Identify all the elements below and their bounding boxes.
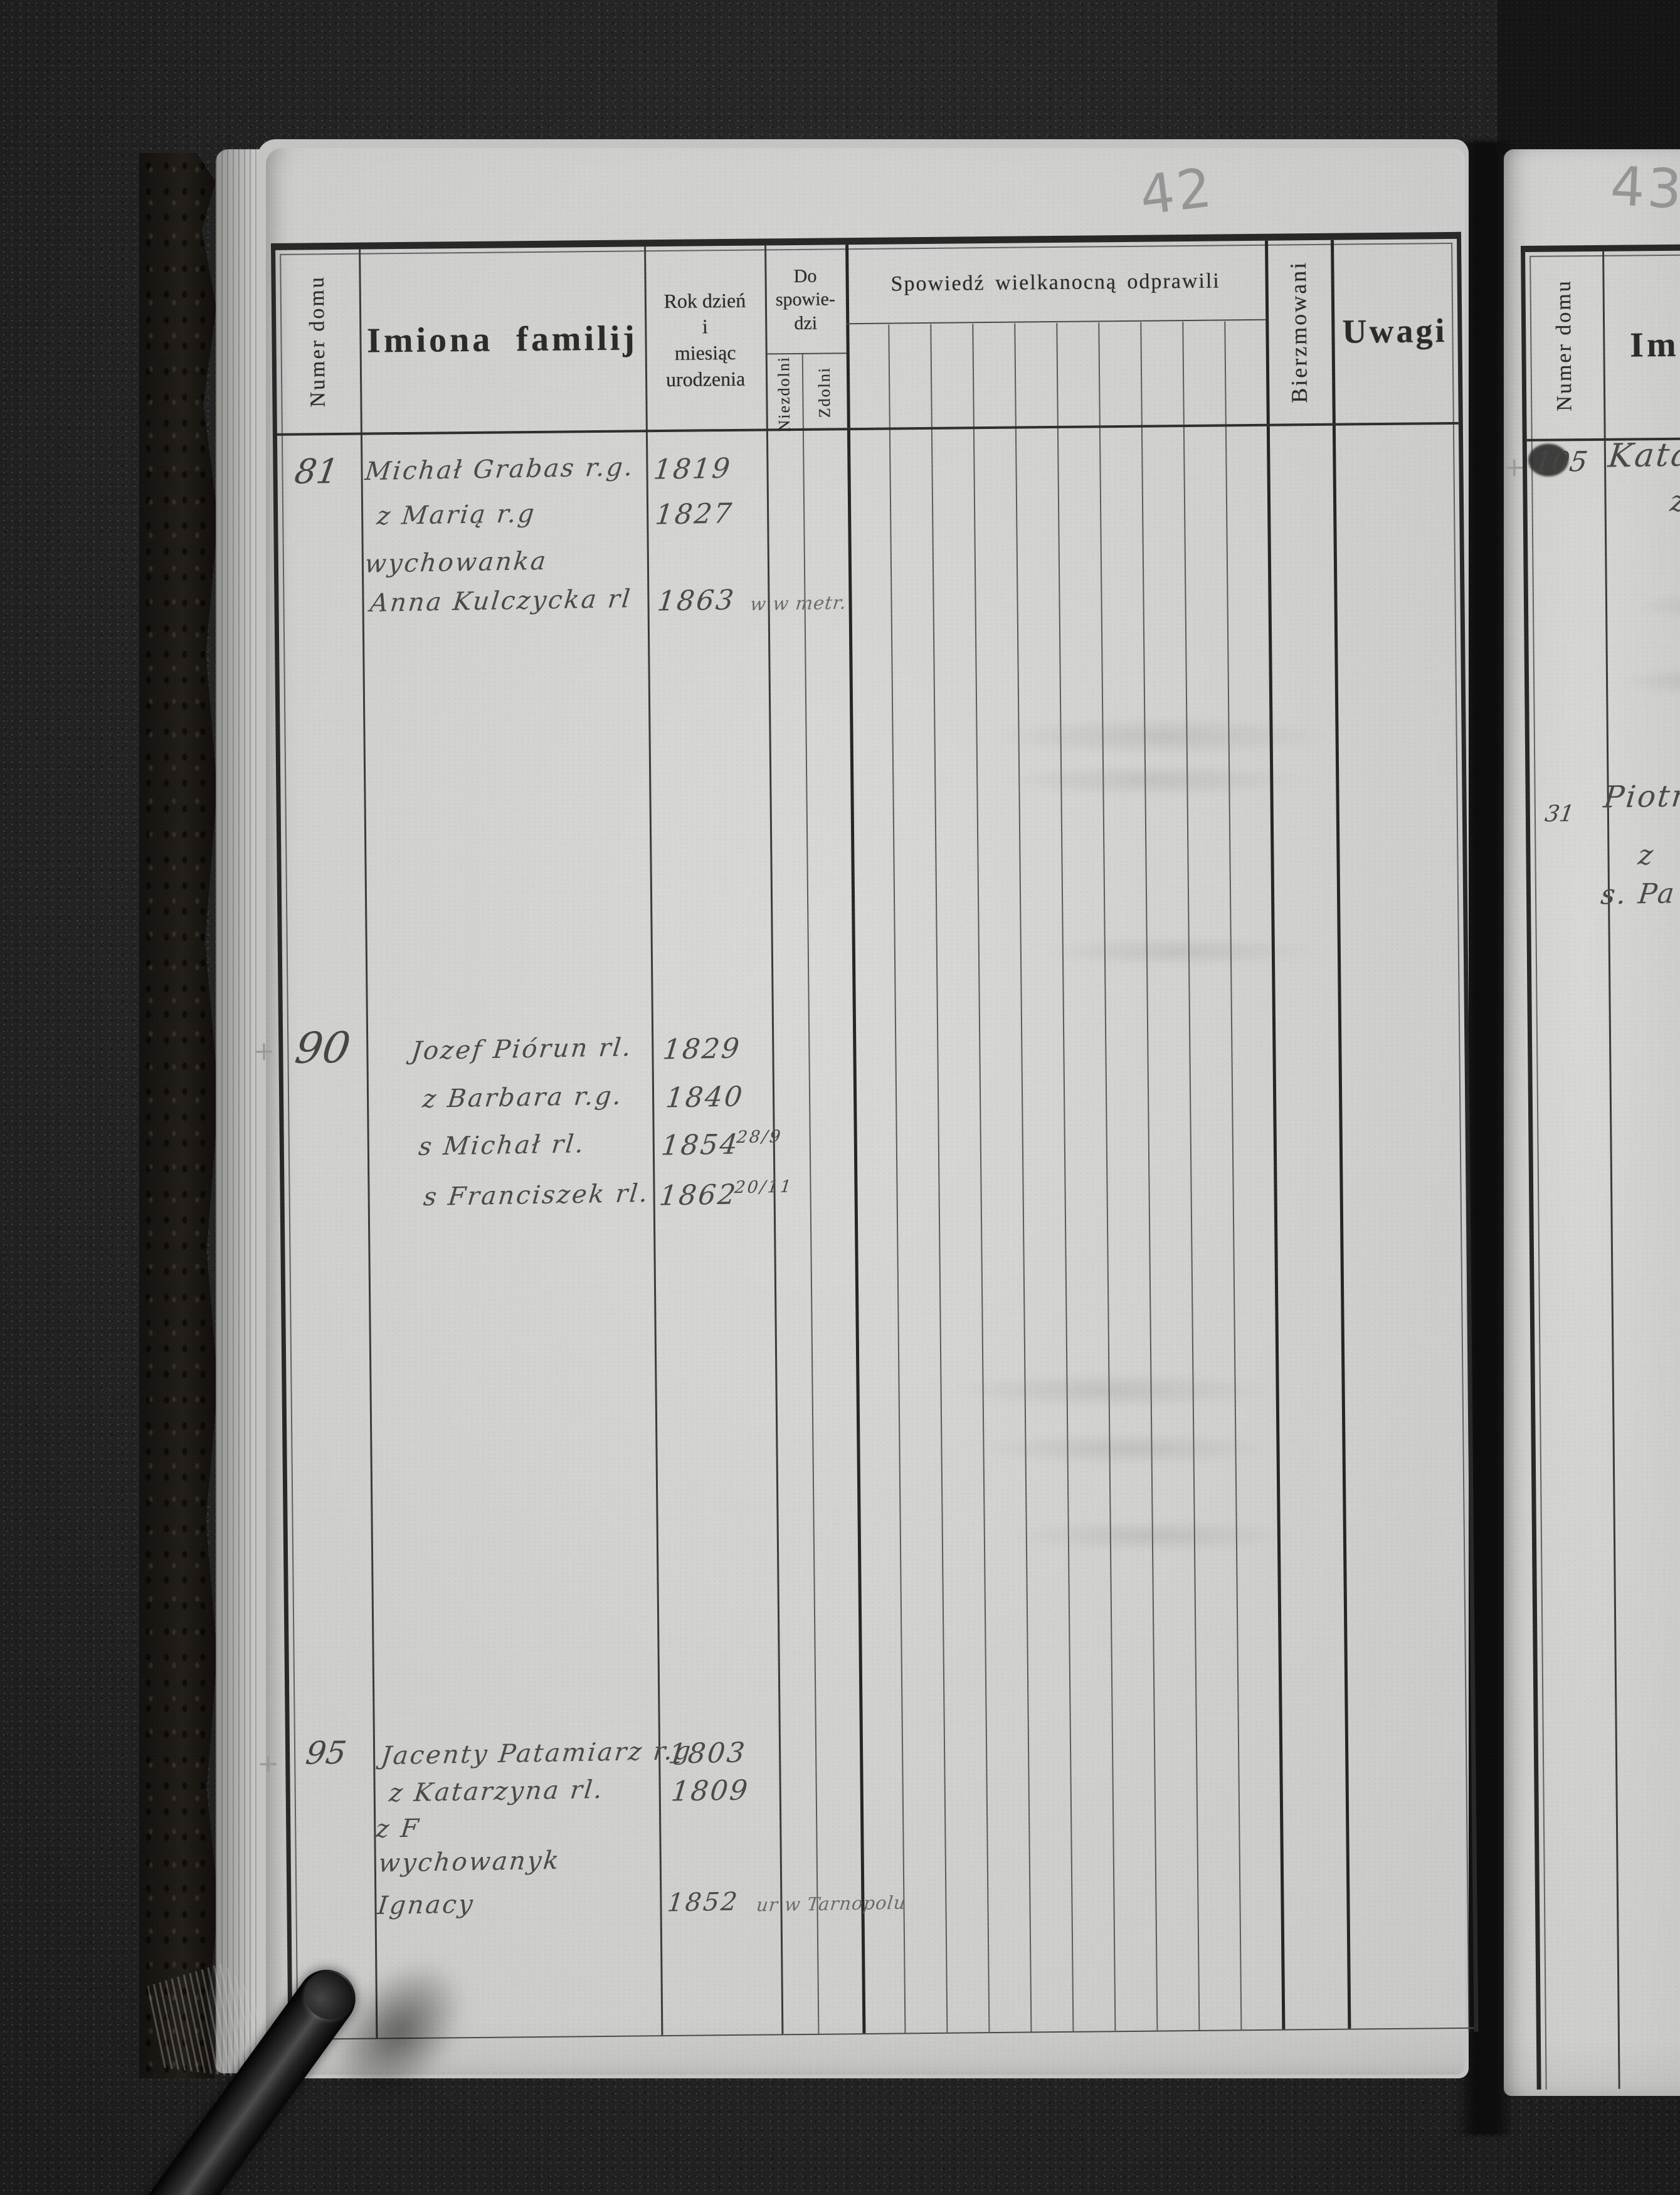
- person-name: s Franciszek rl.: [422, 1179, 651, 1212]
- header-do-line1: Do: [794, 264, 817, 288]
- header-do-line2: spowie-: [776, 288, 835, 312]
- header-imiona-fragment: Im: [1620, 295, 1680, 396]
- header-do-line3: dzi: [794, 311, 817, 335]
- header-numer-domu-right: Numer domu: [1525, 251, 1604, 439]
- header-do-spowiedzi: Do spowie- dzi: [764, 247, 847, 352]
- register-row: Ignacy 1852 ur w Tarnopolu: [291, 1881, 1482, 1949]
- register-table-right: Numer domu Im + 105 Katarz z 31 Piotr ż …: [1521, 245, 1680, 2090]
- header-niezdolni: Niezdolni: [766, 353, 803, 435]
- person-name: z Katarzyna rl.: [388, 1775, 605, 1808]
- header-imiona-familij-label: Imiona familij: [367, 318, 638, 361]
- column-rule: [1602, 251, 1620, 2089]
- house-number: 105: [1532, 446, 1590, 479]
- header-numer-domu: Numer domu: [275, 250, 361, 433]
- person-name: Jozef Piórun rl.: [410, 1033, 634, 1066]
- header-niezdolni-label: Niezdolni: [774, 356, 794, 432]
- house-number: 31: [1543, 801, 1576, 827]
- birth-year: 1819: [652, 453, 733, 486]
- birth-year: 1840: [664, 1081, 745, 1114]
- register-book-scan: 42 43 Numer domu Imiona: [0, 0, 1680, 2195]
- register-row: s Franciszek rl. 1862 20/11: [284, 1172, 1475, 1240]
- margin-cross-mark: +: [257, 1748, 280, 1779]
- header-uwagi: Uwagi: [1331, 239, 1459, 423]
- person-name: Anna Kulczycka rl: [369, 584, 633, 618]
- left-page-number: 42: [1136, 156, 1217, 228]
- person-name: Katarz: [1607, 435, 1680, 475]
- person-name: s Michał rl.: [417, 1129, 586, 1161]
- person-name: Michał Grabas r.g.: [364, 453, 636, 486]
- header-rok-urodzenia: Rok dzień i miesiąc urodzenia: [644, 270, 766, 410]
- right-page-number: 43: [1609, 155, 1680, 221]
- header-numer-domu-label: Numer domu: [305, 275, 330, 408]
- header-numer-domu-right-label: Numer domu: [1552, 279, 1577, 411]
- birth-year: 1862: [658, 1178, 739, 1212]
- person-name: z F: [374, 1814, 421, 1844]
- bleed-through-smudge: [1616, 588, 1680, 623]
- person-name: z Marią r.g: [376, 499, 537, 531]
- person-name: wychowanka: [363, 547, 549, 579]
- header-rok-line1: Rok dzień: [663, 288, 746, 315]
- header-bierzmowani: Bierzmowani: [1265, 240, 1333, 424]
- header-zdolni-label: Zdolni: [815, 367, 834, 418]
- entry-note: w w metr.: [749, 592, 848, 615]
- header-bierzmowani-label: Bierzmowani: [1285, 261, 1313, 403]
- register-row: Anna Kulczycka rl 1863 w w metr.: [278, 578, 1469, 645]
- person-name: Piotr ż: [1602, 778, 1680, 815]
- header-uwagi-label: Uwagi: [1342, 311, 1447, 351]
- person-name: z Barbara r.g.: [421, 1082, 625, 1114]
- birth-year: 1829: [662, 1032, 742, 1066]
- person-name: Ignacy: [376, 1890, 476, 1920]
- header-rok-line3: miesiąc: [675, 340, 736, 367]
- birth-day-fraction: 20/11: [734, 1177, 794, 1198]
- header-imiona-fragment-label: Im: [1630, 325, 1679, 366]
- birth-year: 1854: [660, 1128, 741, 1161]
- header-imiona-familij: Imiona familij: [359, 246, 646, 432]
- birth-year: 1827: [653, 497, 734, 531]
- person-name-fragment: z: [1637, 839, 1657, 871]
- header-spowiedz-label: Spowiedź wielkanocną odprawili: [890, 269, 1220, 296]
- person-name-fragment: z: [1669, 484, 1680, 518]
- entry-note: ur w Tarnopolu: [756, 1892, 907, 1916]
- birth-year: 1852: [666, 1888, 741, 1918]
- person-name: wychowanyk: [377, 1846, 562, 1878]
- book-cover-corner: [1498, 0, 1680, 156]
- header-rok-line2: i: [702, 314, 708, 341]
- birth-year: 1809: [670, 1774, 751, 1807]
- birth-year: 1803: [667, 1737, 748, 1770]
- header-rok-line4: urodzenia: [666, 366, 746, 393]
- birth-year: 1863: [656, 584, 737, 617]
- header-spowiedz-group: Spowiedź wielkanocną odprawili: [845, 252, 1265, 314]
- margin-cross-mark: +: [253, 1035, 275, 1066]
- register-table-left: Numer domu Imiona familij Rok dzień i mi…: [271, 232, 1478, 2043]
- header-zdolni: Zdolni: [802, 352, 847, 432]
- birth-day-fraction: 28/9: [736, 1127, 783, 1147]
- person-name: Jacenty Patamiarz r.g: [380, 1737, 694, 1770]
- margin-cross-mark: +: [1503, 452, 1526, 482]
- bleed-through-smudge: [1598, 664, 1680, 698]
- person-name-fragment: s. Pa: [1599, 877, 1677, 911]
